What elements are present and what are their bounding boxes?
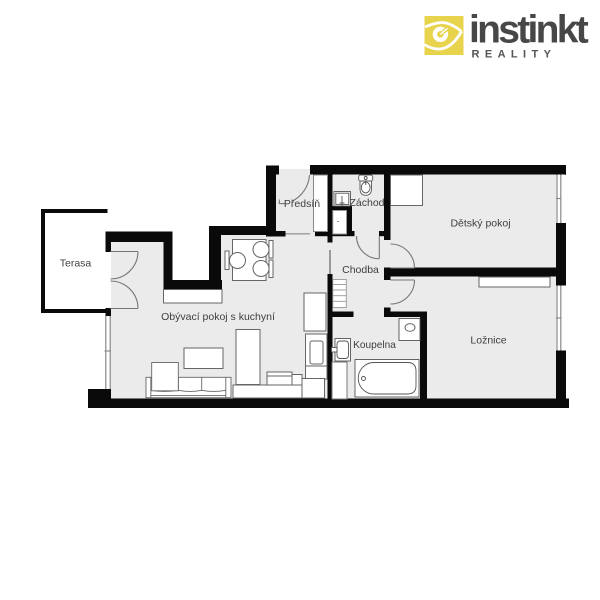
svg-text:Chodba: Chodba <box>342 264 379 276</box>
svg-text:Záchod: Záchod <box>349 197 384 209</box>
svg-text:Dětský pokoj: Dětský pokoj <box>450 218 510 230</box>
svg-text:instinkt: instinkt <box>469 9 589 52</box>
svg-text:Obývací pokoj s kuchyní: Obývací pokoj s kuchyní <box>161 311 275 323</box>
svg-text:Terasa: Terasa <box>60 258 92 270</box>
svg-text:Ložnice: Ložnice <box>470 335 506 347</box>
svg-text:Předsíň: Předsíň <box>284 198 320 210</box>
svg-text:REALITY: REALITY <box>472 49 557 61</box>
svg-text:Koupelna: Koupelna <box>353 340 396 351</box>
